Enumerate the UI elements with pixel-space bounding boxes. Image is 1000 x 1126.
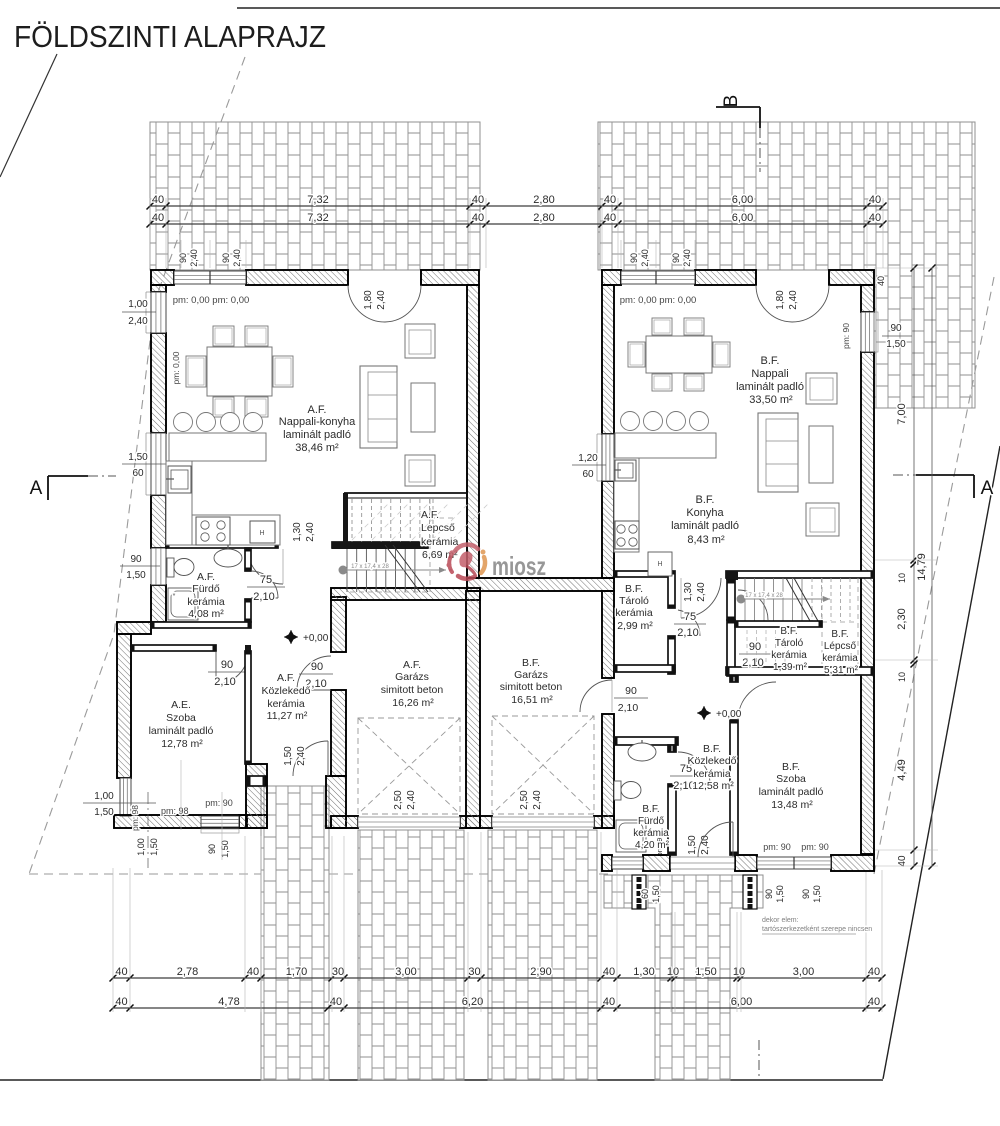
svg-text:1,50: 1,50 (220, 840, 230, 858)
svg-text:tartószerkezetként szerepe nin: tartószerkezetként szerepe nincsen (762, 926, 872, 933)
svg-text:2,40: 2,40 (296, 746, 307, 766)
svg-text:laminált padló: laminált padló (283, 429, 351, 441)
svg-text:16,51 m²: 16,51 m² (511, 694, 553, 706)
svg-text:laminált padló: laminált padló (149, 725, 214, 737)
svg-text:A.E.: A.E. (171, 699, 191, 711)
svg-text:1,30: 1,30 (683, 582, 694, 602)
svg-text:2,78: 2,78 (177, 966, 198, 978)
svg-text:Fürdő: Fürdő (638, 816, 665, 827)
svg-text:6,20: 6,20 (462, 996, 483, 1008)
svg-text:40: 40 (603, 996, 615, 1008)
svg-text:90: 90 (207, 844, 217, 854)
svg-text:A.F.: A.F. (308, 404, 327, 416)
svg-text:B.F.: B.F. (642, 804, 659, 815)
svg-text:33,50 m²: 33,50 m² (749, 394, 793, 406)
svg-text:1,70: 1,70 (286, 966, 307, 978)
svg-text:1,50: 1,50 (126, 570, 146, 581)
svg-text:7,32: 7,32 (307, 212, 328, 224)
svg-text:2,10: 2,10 (253, 591, 274, 603)
svg-text:2,40: 2,40 (788, 290, 799, 310)
svg-text:1,50: 1,50 (775, 885, 785, 903)
svg-text:1,50: 1,50 (94, 807, 114, 818)
svg-text:B: B (721, 95, 742, 108)
svg-text:12,58 m²: 12,58 m² (692, 780, 734, 792)
svg-text:A.F.: A.F. (403, 659, 421, 671)
svg-text:pm: 90: pm: 90 (763, 842, 791, 852)
svg-text:12,78 m²: 12,78 m² (161, 738, 203, 750)
svg-text:40: 40 (869, 194, 881, 206)
svg-text:6,00: 6,00 (732, 212, 753, 224)
svg-text:40: 40 (604, 212, 616, 224)
svg-text:1,50: 1,50 (651, 885, 661, 903)
svg-text:1,50: 1,50 (886, 339, 906, 350)
svg-text:Szoba: Szoba (776, 773, 806, 785)
svg-text:pm: 0,00 pm: 0,00: pm: 0,00 pm: 0,00 (620, 295, 697, 306)
svg-text:90: 90 (178, 253, 188, 263)
svg-text:1,80: 1,80 (775, 290, 786, 310)
svg-text:kerámia: kerámia (187, 596, 225, 608)
svg-text:1,50: 1,50 (283, 746, 294, 766)
svg-text:pm: 90: pm: 90 (841, 323, 851, 349)
svg-text:90: 90 (801, 889, 811, 899)
svg-text:2,40: 2,40 (189, 249, 199, 267)
svg-text:90: 90 (764, 889, 774, 899)
svg-text:40: 40 (247, 966, 259, 978)
svg-text:B.F.: B.F. (761, 355, 780, 367)
svg-text:Konyha: Konyha (686, 507, 724, 519)
svg-text:5,31 m²: 5,31 m² (824, 665, 859, 676)
svg-text:H: H (259, 530, 264, 537)
svg-text:laminált padló: laminált padló (759, 786, 824, 798)
svg-text:90: 90 (629, 253, 639, 263)
svg-text:kerámia: kerámia (267, 698, 305, 710)
svg-text:10: 10 (897, 672, 907, 682)
svg-text:60: 60 (640, 889, 650, 899)
svg-text:40: 40 (115, 996, 127, 1008)
svg-text:2,99 m²: 2,99 m² (617, 620, 653, 632)
svg-text:H: H (657, 561, 662, 568)
svg-text:40: 40 (472, 194, 484, 206)
svg-text:dekor elem:: dekor elem: (762, 917, 799, 924)
svg-text:Garázs: Garázs (514, 669, 548, 681)
svg-text:B.F.: B.F. (625, 583, 643, 595)
svg-text:simitott beton: simitott beton (500, 681, 563, 693)
svg-text:Nappali: Nappali (751, 368, 788, 380)
svg-text:B.F.: B.F. (696, 494, 715, 506)
svg-text:1,00: 1,00 (94, 791, 114, 802)
svg-text:2,40: 2,40 (406, 790, 417, 810)
svg-text:60: 60 (132, 468, 144, 479)
svg-text:30: 30 (468, 966, 480, 978)
svg-text:kerámia: kerámia (771, 650, 807, 661)
svg-text:90: 90 (221, 659, 233, 671)
svg-text:2,40: 2,40 (532, 790, 543, 810)
svg-text:10: 10 (733, 966, 745, 978)
svg-text:90: 90 (671, 253, 681, 263)
svg-text:pm: 98: pm: 98 (161, 806, 189, 816)
svg-text:miosz: miosz (492, 551, 546, 581)
svg-text:4,20 m²: 4,20 m² (635, 840, 670, 851)
svg-text:A.F.: A.F. (421, 509, 439, 521)
svg-text:1,80: 1,80 (363, 290, 374, 310)
svg-text:2,40: 2,40 (700, 835, 711, 855)
svg-text:1,50: 1,50 (128, 452, 148, 463)
svg-text:30: 30 (332, 966, 344, 978)
svg-text:40: 40 (897, 855, 908, 867)
svg-text:2,30: 2,30 (896, 608, 908, 629)
svg-text:2,10: 2,10 (742, 657, 763, 669)
svg-text:6,00: 6,00 (732, 194, 753, 206)
svg-text:38,46 m²: 38,46 m² (295, 442, 339, 454)
svg-text:Tároló: Tároló (775, 638, 804, 649)
svg-text:1,20: 1,20 (578, 453, 598, 464)
svg-text:A.F.: A.F. (277, 672, 295, 684)
svg-text:40: 40 (472, 212, 484, 224)
svg-text:B.F.: B.F. (703, 743, 721, 755)
svg-text:2,40: 2,40 (128, 316, 148, 327)
svg-text:90: 90 (130, 554, 142, 565)
svg-text:Közlekedő: Közlekedő (687, 755, 736, 767)
svg-text:kerámia: kerámia (822, 653, 858, 664)
svg-text:1,39 m²: 1,39 m² (773, 662, 808, 673)
svg-text:2,10: 2,10 (214, 676, 235, 688)
svg-text:6,00: 6,00 (731, 996, 752, 1008)
svg-text:A: A (981, 478, 994, 499)
svg-text:75: 75 (684, 611, 696, 623)
svg-text:*: * (173, 593, 176, 600)
svg-text:B.F.: B.F. (780, 626, 797, 637)
svg-text:Lepcső: Lepcső (421, 522, 455, 534)
svg-text:kerámia: kerámia (693, 768, 731, 780)
svg-text:2,10: 2,10 (677, 627, 698, 639)
svg-text:3,00: 3,00 (793, 966, 814, 978)
svg-text:2,40: 2,40 (376, 290, 387, 310)
svg-text:simitott beton: simitott beton (381, 684, 444, 696)
svg-text:40: 40 (603, 966, 615, 978)
svg-text:Lépcső: Lépcső (824, 641, 857, 652)
svg-text:1,00: 1,00 (136, 838, 146, 856)
svg-text:40: 40 (115, 966, 127, 978)
svg-text:13,48 m²: 13,48 m² (771, 799, 813, 811)
svg-text:40: 40 (152, 212, 164, 224)
svg-text:2,40: 2,40 (305, 522, 316, 542)
svg-text:2,80: 2,80 (533, 194, 554, 206)
svg-text:2,80: 2,80 (533, 212, 554, 224)
svg-text:40: 40 (604, 194, 616, 206)
svg-text:90: 90 (311, 661, 323, 673)
svg-text:90: 90 (749, 641, 761, 653)
svg-text:pm: 90: pm: 90 (205, 798, 233, 808)
svg-text:3,00: 3,00 (395, 966, 416, 978)
svg-text:pm: 0,00 pm: 0,00: pm: 0,00 pm: 0,00 (173, 295, 250, 306)
svg-text:pm: 0,00: pm: 0,00 (171, 351, 181, 384)
svg-text:11,27 m²: 11,27 m² (267, 710, 308, 722)
svg-text:A.F.: A.F. (197, 571, 215, 583)
svg-text:2,50: 2,50 (393, 790, 404, 810)
svg-text:2,50: 2,50 (519, 790, 530, 810)
svg-text:7,32: 7,32 (307, 194, 328, 206)
svg-text:pm: 98: pm: 98 (130, 805, 140, 831)
svg-text:A: A (30, 478, 43, 499)
svg-text:pm: 90: pm: 90 (801, 842, 829, 852)
svg-text:Közlekedő: Közlekedő (261, 685, 310, 697)
svg-text:8,43 m²: 8,43 m² (687, 534, 725, 546)
svg-text:+0,00: +0,00 (716, 709, 742, 720)
svg-text:B.F.: B.F. (522, 657, 540, 669)
svg-text:+0,00: +0,00 (303, 633, 329, 644)
svg-text:2,40: 2,40 (232, 249, 242, 267)
svg-text:1,30: 1,30 (292, 522, 303, 542)
svg-text:laminált padló: laminált padló (736, 381, 804, 393)
svg-text:7,00: 7,00 (896, 403, 908, 424)
svg-text:1,50: 1,50 (812, 885, 822, 903)
svg-text:90: 90 (890, 323, 902, 334)
svg-text:60: 60 (582, 469, 594, 480)
svg-text:1,00: 1,00 (128, 299, 148, 310)
svg-text:1,50: 1,50 (687, 835, 698, 855)
svg-text:40: 40 (868, 966, 880, 978)
svg-text:90: 90 (625, 685, 637, 697)
svg-text:2,40: 2,40 (640, 249, 650, 267)
svg-text:laminált padló: laminált padló (671, 520, 739, 532)
svg-text:Fürdő: Fürdő (192, 583, 220, 595)
svg-text:2,10: 2,10 (618, 702, 639, 714)
svg-text:40: 40 (869, 212, 881, 224)
svg-text:10: 10 (667, 966, 679, 978)
svg-text:1,50: 1,50 (695, 966, 716, 978)
svg-text:1,50: 1,50 (149, 838, 159, 856)
svg-text:kerámia: kerámia (421, 536, 459, 548)
svg-text:10: 10 (897, 573, 907, 583)
svg-text:Szoba: Szoba (166, 712, 196, 724)
svg-text:40: 40 (868, 996, 880, 1008)
svg-text:1,30: 1,30 (633, 966, 654, 978)
svg-text:17 x 17,4 x 28: 17 x 17,4 x 28 (745, 593, 783, 599)
svg-text:90: 90 (221, 253, 231, 263)
svg-text:4,49: 4,49 (896, 759, 908, 780)
svg-text:Garázs: Garázs (395, 671, 429, 683)
svg-text:40: 40 (876, 276, 886, 286)
svg-text:kerámia: kerámia (633, 828, 669, 839)
svg-text:Tároló: Tároló (619, 595, 649, 607)
svg-text:14,79: 14,79 (916, 553, 928, 581)
svg-text:40: 40 (152, 194, 164, 206)
svg-text:2,40: 2,40 (682, 249, 692, 267)
svg-text:B.F.: B.F. (831, 629, 848, 640)
svg-text:16,26 m²: 16,26 m² (392, 697, 434, 709)
svg-text:FÖLDSZINTI ALAPRAJZ: FÖLDSZINTI ALAPRAJZ (14, 19, 326, 54)
svg-text:75: 75 (260, 574, 272, 586)
svg-text:4,78: 4,78 (218, 996, 239, 1008)
svg-text:2,90: 2,90 (530, 966, 551, 978)
svg-text:4,08 m²: 4,08 m² (188, 608, 224, 620)
svg-text:17 x 17,4 x 28: 17 x 17,4 x 28 (351, 564, 389, 570)
svg-text:kerámia: kerámia (615, 607, 653, 619)
svg-text:2,40: 2,40 (696, 582, 707, 602)
svg-text:B.F.: B.F. (782, 761, 800, 773)
svg-text:Nappali-konyha: Nappali-konyha (279, 416, 356, 428)
